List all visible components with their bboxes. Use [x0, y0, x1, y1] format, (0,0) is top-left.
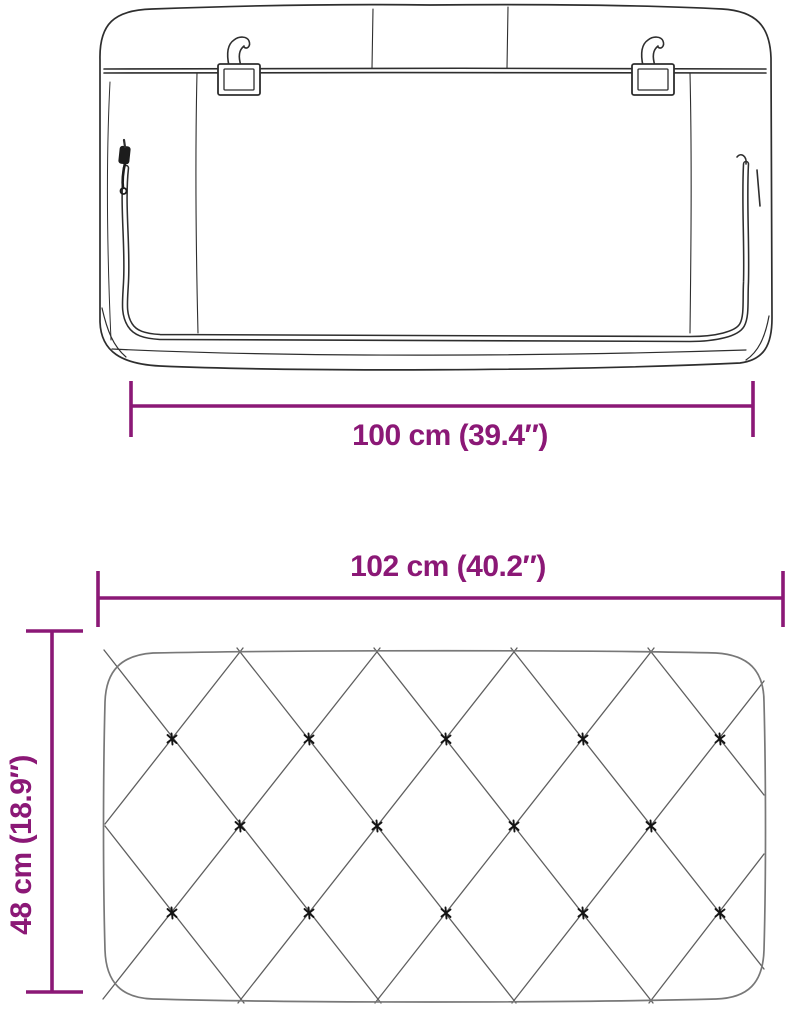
tufting-buttons [168, 734, 725, 919]
lattice-diagonals-down-right [104, 648, 764, 1003]
diagram-drawing [0, 0, 795, 1020]
front-height-dimension-label: 48 cm (18.9″) [5, 685, 39, 1005]
hanging-bracket-left [218, 37, 260, 95]
back-outline [100, 5, 772, 370]
product-dimension-diagram: 100 cm (39.4″) 102 cm (40.2″) 48 cm (18.… [0, 0, 795, 1020]
bracket-strap [642, 37, 664, 66]
back-bottom-fold-line [112, 349, 746, 355]
back-flap-seam-lines [196, 73, 691, 333]
tufting-button [168, 908, 177, 919]
back-corner-fold-right [746, 316, 769, 360]
zipper-track-core [125, 164, 747, 339]
bracket-plate-inner [224, 69, 254, 90]
front-width-dimension-label: 102 cm (40.2″) [288, 550, 608, 584]
zipper-track [125, 164, 747, 339]
tufting-lattice-lines [103, 648, 764, 1003]
bracket-plate-inner [638, 69, 668, 90]
hanging-bracket-right [632, 37, 674, 95]
back-band-seam-lines [372, 7, 508, 68]
tufting-button [716, 908, 725, 919]
front-outline [104, 651, 766, 1002]
back-left-fold-line [107, 82, 111, 340]
bracket-strap [228, 37, 250, 66]
back-width-dimension-label: 100 cm (39.4″) [290, 419, 610, 453]
headboard-front-view [103, 648, 766, 1003]
back-right-edge-dash [757, 170, 760, 206]
headboard-back-view [100, 5, 772, 370]
tufting-button [716, 734, 725, 745]
